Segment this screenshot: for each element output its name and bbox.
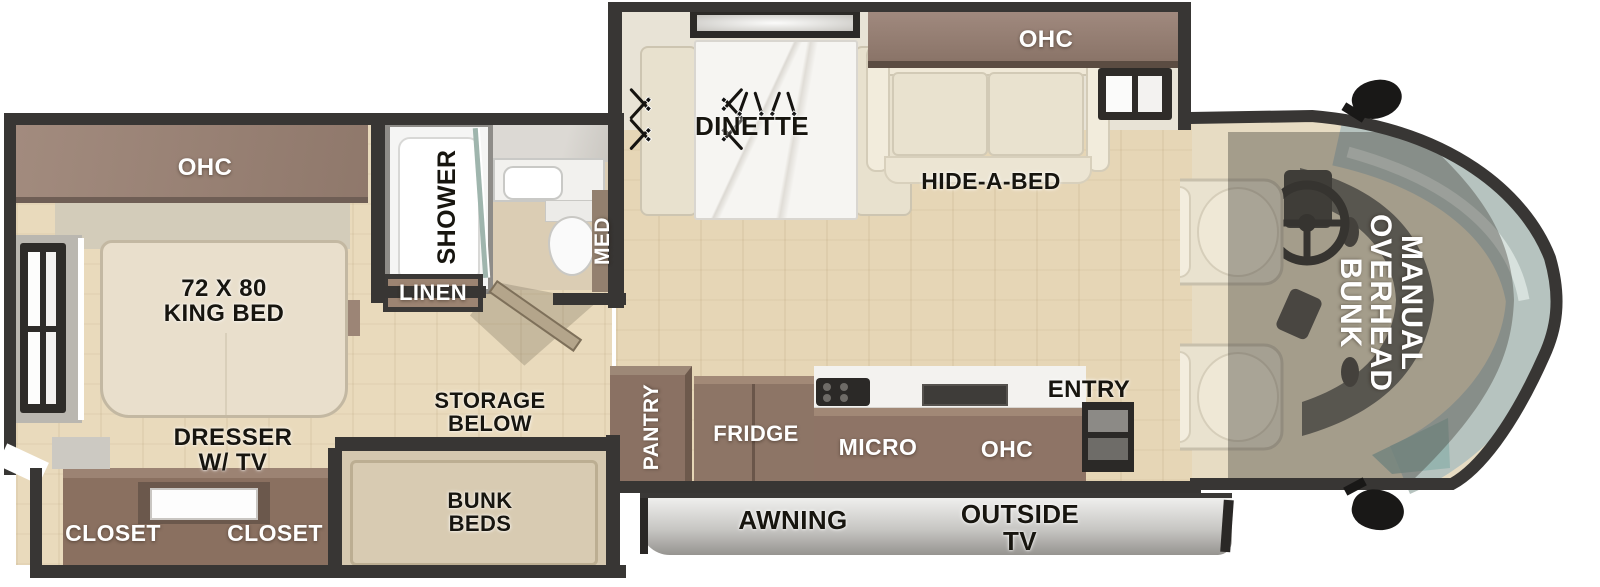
bed-center-seam (225, 333, 227, 415)
awning-bar (640, 493, 1232, 555)
fridge-door-split (752, 384, 755, 482)
dinette-skylight (690, 8, 860, 38)
main-top-wall (4, 113, 616, 125)
bunk-right-wall (606, 435, 620, 577)
awning-end-left (640, 498, 648, 554)
closet-dresser-block (63, 468, 328, 565)
kitchen-counter (814, 366, 1086, 410)
bunk-interior (342, 451, 606, 575)
step (1088, 410, 1128, 432)
slide-seam (78, 238, 84, 420)
dinette-slide-window (1098, 68, 1172, 120)
burner (823, 394, 831, 402)
front-cap (1180, 95, 1600, 545)
bedroom-ohc-cabinet (16, 125, 368, 203)
tv (150, 488, 258, 520)
bedroom-window (20, 243, 66, 413)
sink-bowl (503, 166, 563, 200)
slide-right-wall (1178, 2, 1191, 130)
step (1088, 438, 1128, 460)
bedroom-bath-wall (371, 113, 385, 303)
seatbelt-icons (620, 40, 1100, 220)
kitchen-ohc-micro-cabinet (814, 408, 1086, 484)
burner (823, 383, 831, 391)
vanity-sink (493, 158, 605, 202)
rv-floorplan: OHC 72 X 80 KING BED DRESSER W/ TV CLOSE… (0, 0, 1600, 587)
bathroom-right-wall (608, 113, 624, 308)
kitchen-bottom-wall (616, 481, 1201, 493)
burner (840, 383, 848, 391)
slide-left-wall (608, 2, 622, 127)
shower-pan (398, 137, 480, 283)
window-pane (1138, 76, 1162, 112)
fridge (694, 376, 814, 482)
window-pane (1106, 76, 1132, 112)
entry-steps (1082, 402, 1134, 472)
slide-top-wall (608, 2, 1191, 12)
bunk-mattress (350, 460, 598, 566)
bathroom-bottom-wall-a (371, 286, 486, 298)
cooktop (816, 378, 870, 406)
vanity-backsplash (493, 122, 612, 162)
rear-wall-upper (4, 113, 16, 475)
kitchen-sink (922, 384, 1008, 406)
rear-wall-lower (30, 468, 42, 578)
bathroom-bottom-wall-b (553, 293, 626, 305)
burner (840, 394, 848, 402)
bunk-left-wall (328, 448, 342, 575)
pantry-cabinet (610, 366, 692, 482)
king-bed (100, 240, 348, 418)
slide-step (52, 437, 110, 469)
window-mullion (24, 326, 64, 332)
bunk-top-wall (335, 437, 620, 451)
